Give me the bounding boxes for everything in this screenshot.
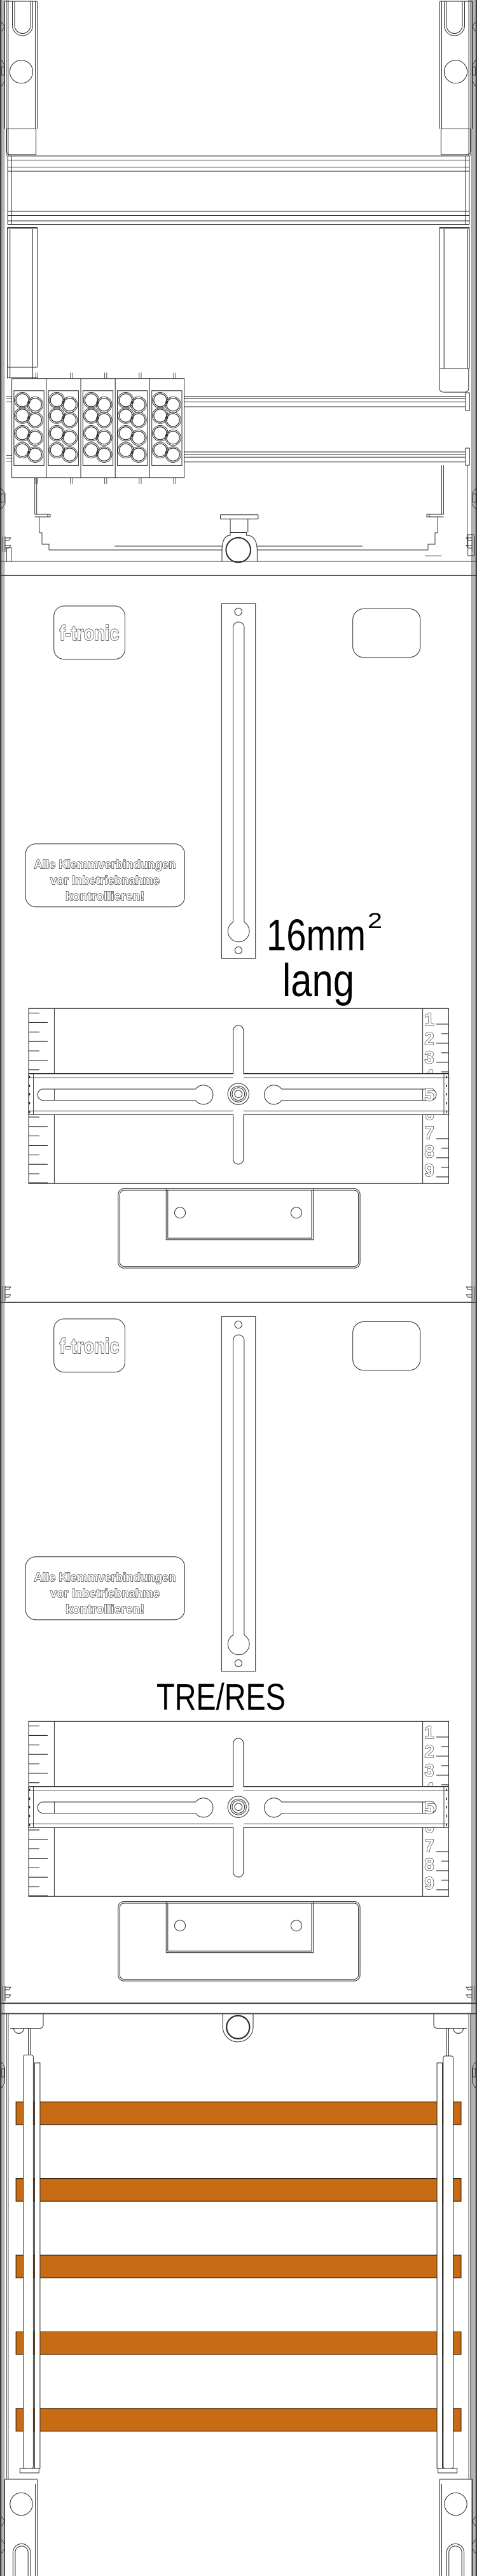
svg-text:5: 5: [424, 1085, 434, 1105]
svg-text:16mm: 16mm: [266, 910, 366, 960]
svg-text:Alle Klemmverbindungen: Alle Klemmverbindungen: [34, 859, 176, 872]
svg-text:vor Inbetriebnahme: vor Inbetriebnahme: [50, 875, 160, 888]
svg-text:lang: lang: [282, 955, 354, 1006]
svg-text:9: 9: [424, 1160, 434, 1180]
svg-text:2: 2: [368, 909, 382, 933]
svg-text:kontrollieren!: kontrollieren!: [66, 890, 144, 904]
svg-text:vor Inbetriebnahme: vor Inbetriebnahme: [50, 1587, 160, 1601]
svg-text:Alle Klemmverbindungen: Alle Klemmverbindungen: [34, 1572, 176, 1585]
svg-text:f-tronic: f-tronic: [60, 621, 120, 645]
svg-text:kontrollieren!: kontrollieren!: [66, 1603, 144, 1617]
svg-text:8: 8: [424, 1142, 434, 1162]
svg-text:3: 3: [424, 1048, 434, 1067]
svg-text:7: 7: [424, 1123, 434, 1143]
svg-text:1: 1: [424, 1010, 434, 1029]
svg-text:f-tronic: f-tronic: [60, 1334, 120, 1358]
svg-text:2: 2: [424, 1029, 434, 1048]
svg-text:TRE/RES: TRE/RES: [156, 1677, 286, 1718]
